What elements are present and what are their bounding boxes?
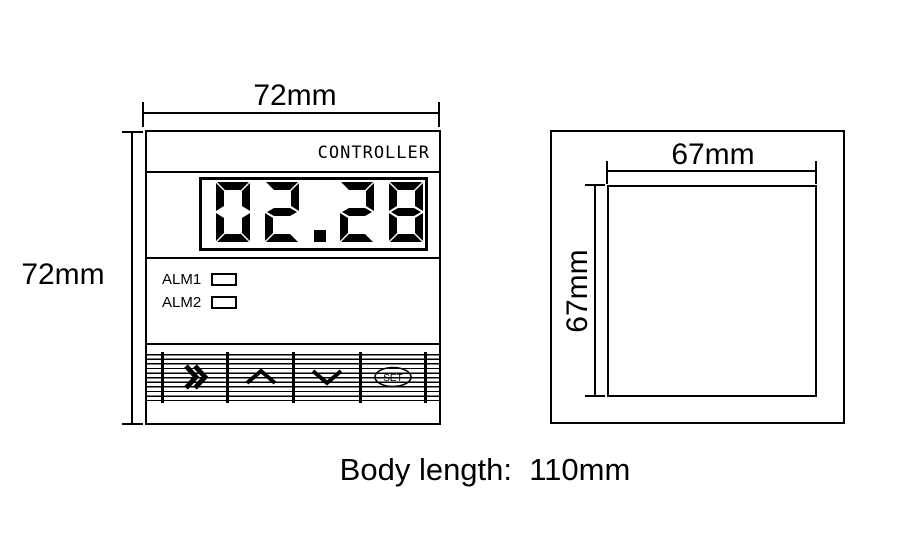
seven-segment-display — [199, 177, 428, 251]
keypad-separator — [424, 352, 427, 403]
front-height-dim-tick-bottom — [122, 423, 143, 425]
front-height-dimension-label: 72mm — [6, 259, 120, 291]
up-button[interactable] — [230, 358, 292, 396]
keypad-divider-line — [147, 343, 439, 345]
body-length-caption: Body length: 110mm — [245, 452, 725, 488]
header-divider-line — [147, 171, 439, 173]
indicator-row-alm1: ALM1 — [162, 272, 237, 287]
front-width-dimension-label: 72mm — [195, 80, 395, 112]
chevron-down-icon — [310, 368, 344, 386]
cutout-height-dim-tick-top — [585, 184, 605, 186]
chevron-up-icon — [244, 368, 278, 386]
cutout-width-dimension-label: 67mm — [613, 139, 813, 171]
cutout-inner-square — [607, 185, 817, 397]
indicator-row-alm2: ALM2 — [162, 295, 237, 310]
cutout-width-dim-tick-right — [815, 161, 817, 184]
cutout-width-dim-tick-left — [606, 161, 608, 184]
cutout-height-dimension-label: 67mm — [562, 231, 592, 351]
front-height-dim-tick-top — [122, 131, 143, 133]
down-button[interactable] — [296, 358, 358, 396]
controller-front-panel: CONTROLLER ALM1 ALM2 — [145, 130, 441, 425]
alm1-led-icon — [211, 273, 237, 286]
set-button-label: SET — [383, 373, 402, 384]
cutout-width-dim-line — [607, 170, 817, 172]
double-chevron-right-icon — [181, 363, 209, 391]
technical-drawing: 72mm 72mm CONTROLLER ALM1 ALM2 — [0, 0, 900, 535]
display-digits — [204, 180, 424, 249]
set-button[interactable]: SET — [362, 358, 424, 396]
front-width-dim-tick-right — [438, 102, 440, 127]
front-width-dim-line — [143, 112, 440, 114]
cutout-height-dim-line — [594, 185, 596, 397]
set-button-oval: SET — [371, 365, 415, 389]
alm2-label: ALM2 — [162, 295, 201, 310]
shift-button[interactable] — [164, 358, 226, 396]
keypad-separator — [226, 352, 229, 403]
front-height-dim-line — [131, 132, 133, 425]
alm2-led-icon — [211, 296, 237, 309]
alm1-label: ALM1 — [162, 272, 201, 287]
front-width-dim-tick-left — [142, 102, 144, 127]
brand-label: CONTROLLER — [318, 143, 430, 163]
keypad-separator — [292, 352, 295, 403]
cutout-height-dim-tick-bottom — [585, 395, 605, 397]
display-divider-line — [147, 257, 439, 259]
